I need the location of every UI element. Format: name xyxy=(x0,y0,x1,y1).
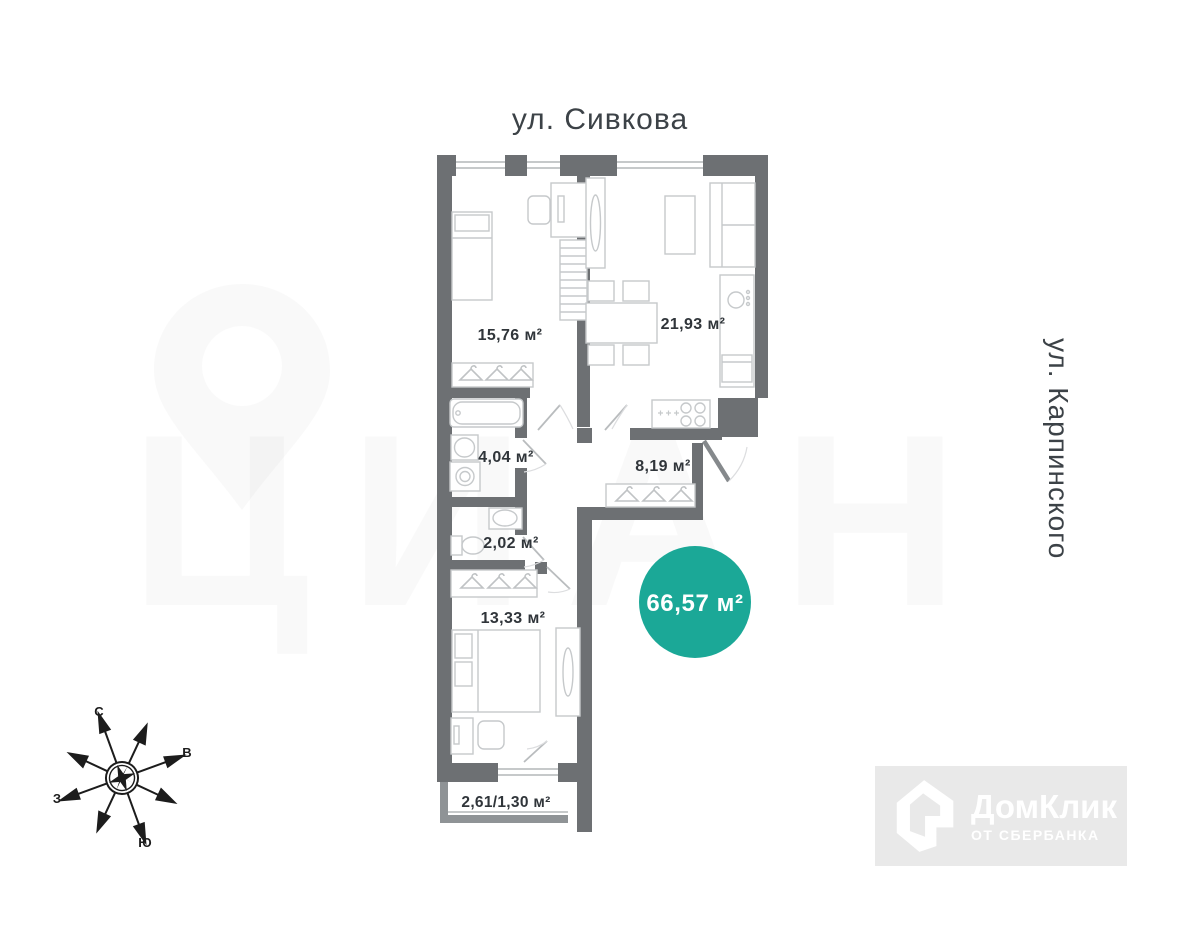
area-label-bedroom2: 13,33 м² xyxy=(481,610,546,627)
compass-rose-icon: С В З Ю xyxy=(47,700,197,855)
compass-east-label: В xyxy=(182,745,191,760)
floorplan-page: ЦИАН ул. Сивкова ул. Карпинского xyxy=(0,0,1200,941)
compass-north-label: С xyxy=(94,704,104,719)
dining-table xyxy=(586,281,657,365)
wardrobe-bedroom2 xyxy=(451,570,537,597)
shelving-bedroom1 xyxy=(560,240,587,320)
toilet xyxy=(451,536,484,555)
wardrobe-hallway xyxy=(606,484,695,507)
desk-bedroom1 xyxy=(528,183,587,237)
window-kitchen xyxy=(617,162,703,168)
total-area-value: 66,57 м² xyxy=(646,590,743,617)
window-bedroom1-left xyxy=(456,162,505,168)
wardrobe-bedroom2-right xyxy=(556,628,580,716)
door-balcony xyxy=(524,741,547,762)
domklik-subtitle: ОТ СБЕРБАНКА xyxy=(971,827,1117,843)
window-balcony-door xyxy=(498,769,558,775)
domklik-logo: ДомКлик ОТ СБЕРБАНКА xyxy=(875,766,1127,866)
area-label-bathroom: 4,04 м² xyxy=(478,449,534,466)
door-entrance xyxy=(704,441,729,481)
door-kitchen xyxy=(605,405,627,430)
window-bedroom1-right xyxy=(527,162,560,168)
bed-bedroom1 xyxy=(452,212,492,300)
compass-south-label: Ю xyxy=(138,835,151,850)
bathtub xyxy=(450,399,523,427)
desk-bedroom2 xyxy=(451,718,504,754)
door-bedroom1 xyxy=(538,405,560,430)
coffee-table-living xyxy=(665,196,695,254)
compass-west-label: З xyxy=(53,791,61,806)
mirror-wardrobe-living xyxy=(586,178,605,268)
domklik-house-icon xyxy=(893,778,959,854)
door-bedroom2 xyxy=(547,567,570,589)
area-label-balcony: 2,61/1,30 м² xyxy=(461,794,550,811)
area-label-living-kitchen: 21,93 м² xyxy=(661,316,726,333)
bathroom-sink xyxy=(451,435,478,460)
washing-machine xyxy=(450,462,480,491)
stove xyxy=(652,400,710,428)
area-label-hallway: 8,19 м² xyxy=(635,458,691,475)
bed-bedroom2 xyxy=(452,630,540,712)
domklik-title: ДомКлик xyxy=(971,790,1117,824)
sofa-living xyxy=(710,183,755,267)
furniture xyxy=(450,178,755,754)
wc-sink xyxy=(489,508,522,529)
area-label-wc: 2,02 м² xyxy=(483,535,539,552)
total-area-badge: 66,57 м² xyxy=(639,546,751,658)
area-label-bedroom1: 15,76 м² xyxy=(478,327,543,344)
wardrobe-bedroom1 xyxy=(452,363,533,387)
